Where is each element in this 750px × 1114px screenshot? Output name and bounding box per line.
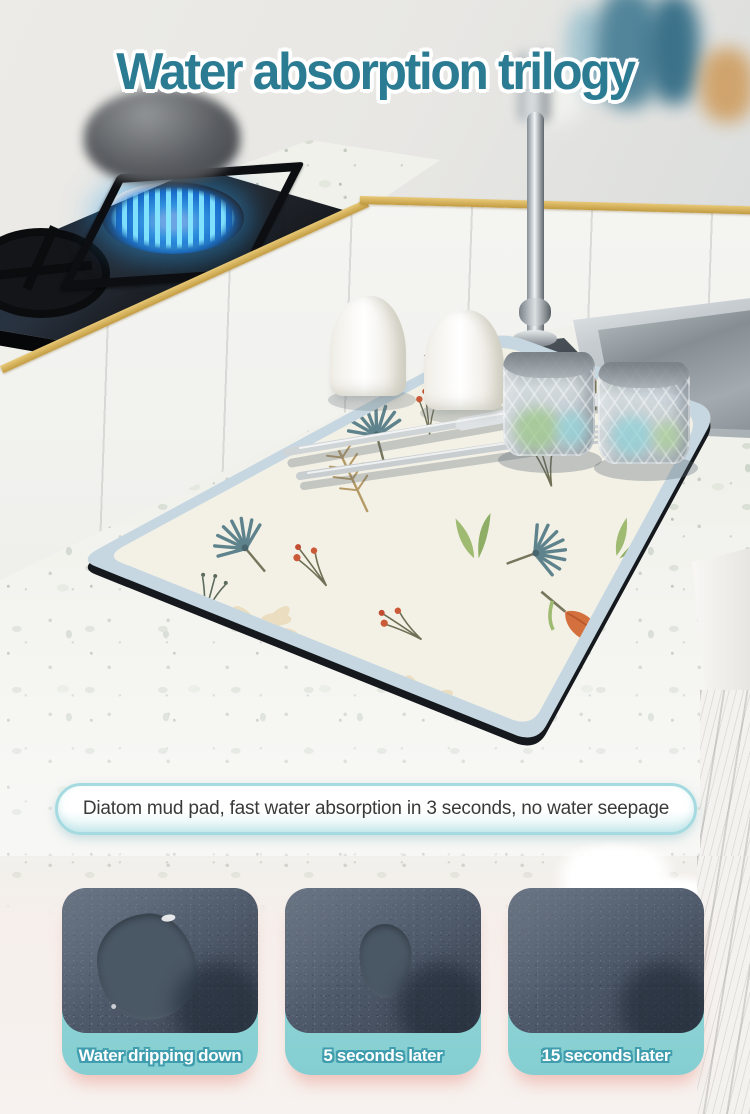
crystal-glass [598, 362, 690, 464]
step-card-3: 15 seconds later [508, 888, 704, 1075]
step-label: 15 seconds later [508, 1046, 704, 1066]
step-photo-dry [508, 888, 704, 1033]
page-title: Water absorption trilogy [15, 42, 735, 102]
step-label: Water dripping down [62, 1046, 258, 1066]
white-shaker [330, 296, 406, 396]
white-shaker [424, 310, 504, 410]
marble-panel [697, 856, 750, 1114]
banner-pill: Diatom mud pad, fast water absorption in… [55, 783, 697, 835]
step-photo-absorbing [285, 888, 481, 1033]
glass-reflection [557, 412, 587, 446]
crystal-glass [503, 352, 595, 456]
step-card-2: 5 seconds later [285, 888, 481, 1075]
glass-reflection [654, 422, 680, 452]
glass-reflection [515, 408, 559, 450]
absorption-steps-section: Water dripping down 5 seconds later 15 s… [0, 856, 750, 1114]
glass-reflection [612, 416, 652, 456]
banner-text: Diatom mud pad, fast water absorption in… [83, 798, 669, 820]
step-photo-wet [62, 888, 258, 1033]
kitchen-photo: Diatom mud pad, fast water absorption in… [0, 0, 750, 856]
product-poster: Diatom mud pad, fast water absorption in… [0, 0, 750, 1114]
steps-row: Water dripping down 5 seconds later 15 s… [62, 888, 704, 1075]
step-card-1: Water dripping down [62, 888, 258, 1075]
step-label: 5 seconds later [285, 1046, 481, 1066]
